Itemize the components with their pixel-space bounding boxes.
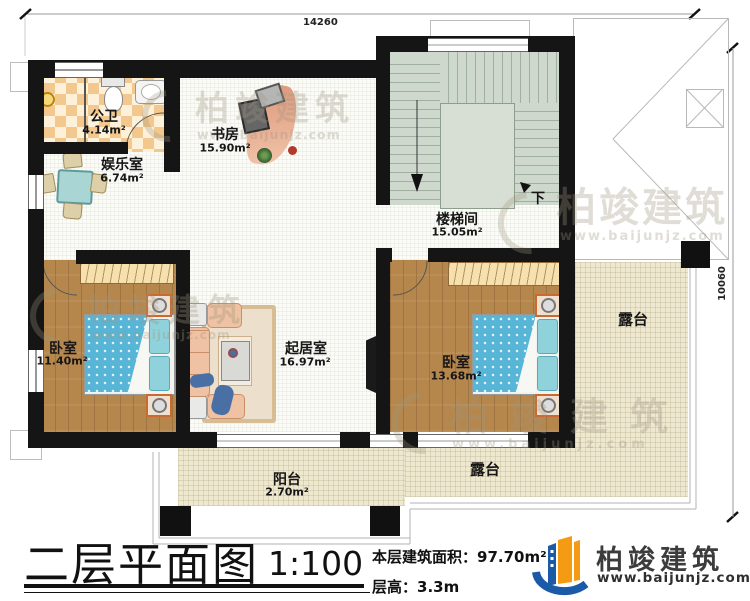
room-area-balcony: 2.70m² [265, 487, 308, 498]
wall-bathroom-bottom [28, 142, 128, 154]
drawing-scale: 1:100 [268, 544, 363, 583]
room-area-living: 16.97m² [279, 357, 330, 368]
floor-height-label: 层高： [372, 578, 417, 596]
floor-plan-canvas: 柏竣建筑 www.baijunjz.com 柏竣建筑 www.baijunjz.… [0, 0, 750, 601]
watermark-brand: 柏竣建筑 [88, 294, 248, 326]
wall-bedroom1-right [176, 250, 190, 448]
wall-bedroom1-top [76, 250, 190, 264]
floor-height-value: 3.3m [417, 578, 459, 596]
room-area-bedroom2: 13.68m² [430, 371, 481, 382]
room-area-stairwell: 15.05m² [431, 227, 482, 238]
wall-bedroom2-left [376, 248, 390, 448]
watermark-site: www.baijunjz.com [560, 230, 725, 243]
room-label-bedroom2: 卧室 [442, 356, 470, 370]
wall-stairwell-left [376, 36, 390, 205]
room-label-bathroom: 公卫 [90, 110, 118, 124]
window-stairwell [428, 38, 528, 52]
column [370, 506, 400, 536]
floor-height-stat: 层高：3.3m [372, 576, 459, 597]
room-area-entertainment: 6.74m² [100, 173, 143, 184]
watermark-brand: 柏竣建筑 [195, 92, 355, 126]
dimension-top-value: 14260 [303, 17, 338, 28]
window-bathroom [55, 62, 103, 78]
room-label-living: 起居室 [285, 342, 327, 356]
company-website: www.baijunjz.com [597, 570, 750, 586]
wall-bottom-b [340, 432, 370, 448]
title-rule-thick [24, 584, 364, 588]
room-area-study: 15.90m² [199, 143, 250, 154]
column [681, 241, 710, 268]
top-dimension-line [25, 14, 694, 56]
tv-icon [366, 336, 376, 393]
sliding-door-balcony [217, 434, 340, 448]
title-rule-thin [24, 592, 370, 593]
watermark-brand: 柏竣建筑 [556, 188, 728, 228]
floor-area-stat: 本层建筑面积：97.70m² [372, 546, 547, 567]
room-label-entertainment: 娱乐室 [101, 158, 143, 172]
room-label-terrace-right: 露台 [618, 313, 648, 328]
room-area-bedroom1: 11.40m² [36, 356, 87, 367]
room-label-terrace-bottom: 露台 [470, 463, 500, 478]
watermark-site: www.baijunjz.com [452, 438, 649, 451]
room-area-bathroom: 4.14m² [82, 125, 125, 136]
stair-down-label: 下 [531, 192, 545, 206]
window-entertainment [28, 175, 44, 209]
watermark-brand: 柏竣建筑 [450, 398, 690, 436]
room-label-study: 书房 [211, 128, 239, 142]
stair-arrow [411, 100, 531, 193]
floor-area-label: 本层建筑面积： [372, 548, 477, 566]
watermark-site: www.baijunjz.com [92, 329, 231, 341]
wall-stairblock-bottom-b [428, 248, 575, 262]
dimension-right-value: 10060 [717, 266, 728, 301]
company-logo-icon [528, 532, 592, 598]
wall-bottom-a [28, 432, 217, 448]
